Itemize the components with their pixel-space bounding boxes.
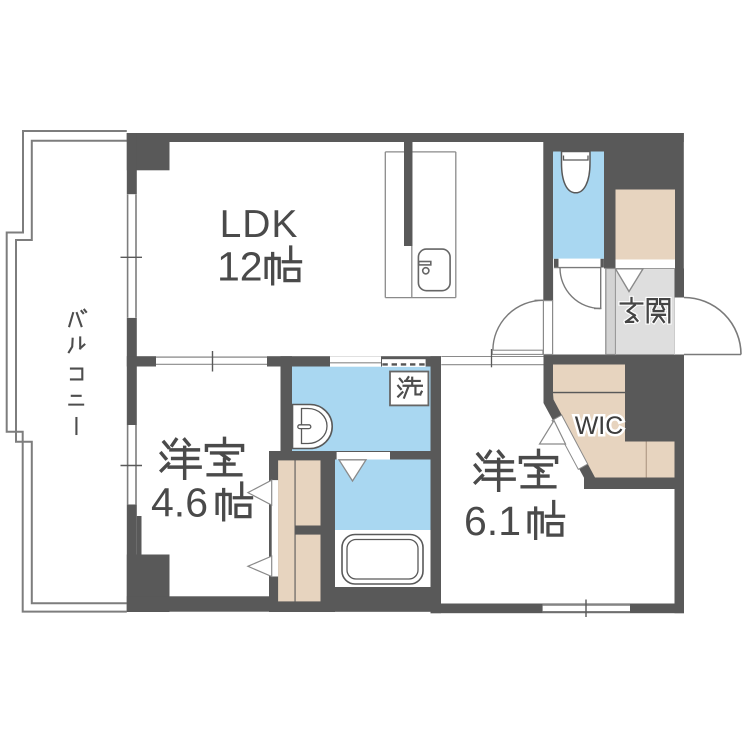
svg-text:WIC: WIC	[575, 412, 624, 440]
svg-text:LDK: LDK	[220, 203, 299, 246]
svg-text:6.1: 6.1	[464, 498, 521, 544]
svg-text:4.6: 4.6	[151, 480, 208, 526]
svg-text:12: 12	[217, 244, 263, 290]
